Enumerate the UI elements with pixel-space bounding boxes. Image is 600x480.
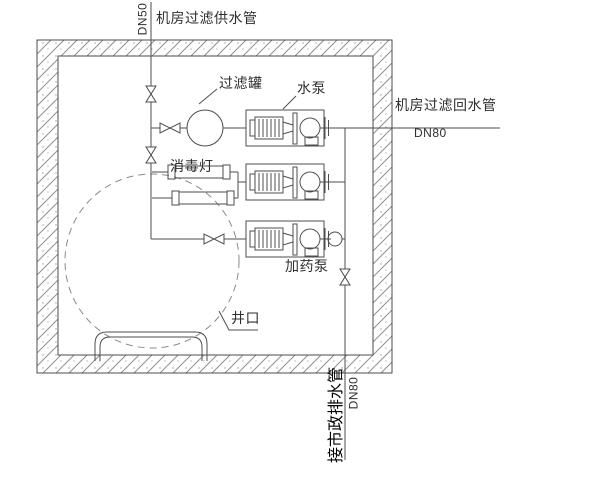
dosing-pump-label: 加药泵 <box>285 258 329 274</box>
supply-valve-upper <box>146 86 156 102</box>
supply-pipe <box>151 2 246 239</box>
dosing-branch-valve <box>204 234 224 244</box>
supply-pipe-label: 机房过滤供水管 <box>156 10 258 26</box>
supply-valve-lower <box>146 147 156 163</box>
water-pump-2-symbol <box>246 164 331 200</box>
filter-tank-label: 过滤罐 <box>219 75 263 91</box>
piping-diagram: 机房过滤供水管 DN50 机房过滤回水管 DN80 接市政排水管 DN80 过滤… <box>0 0 600 480</box>
return-pipe-label: 机房过滤回水管 <box>395 97 497 113</box>
lamp-branch-pipes <box>152 172 246 198</box>
well-mouth-label: 井口 <box>231 310 260 326</box>
room-wall-outline <box>37 40 392 373</box>
water-pump-label: 水泵 <box>297 80 326 96</box>
drain-pipe-dn-label: DN80 <box>333 373 373 413</box>
tank-branch-valve <box>160 123 180 133</box>
return-pipe-dn-label: DN80 <box>414 127 447 141</box>
leader-lines <box>199 89 296 330</box>
supply-pipe-dn-label: DN50 <box>127 4 157 34</box>
drain-valve <box>340 269 350 285</box>
well-dashed-outline <box>65 174 239 348</box>
filter-tank-symbol <box>187 110 223 146</box>
uv-lamp-label: 消毒灯 <box>170 158 214 174</box>
room-wall <box>37 40 392 373</box>
uv-lamp-2-symbol <box>172 191 234 205</box>
water-pump-3-symbol <box>246 221 331 257</box>
water-pump-1-symbol <box>246 110 331 146</box>
